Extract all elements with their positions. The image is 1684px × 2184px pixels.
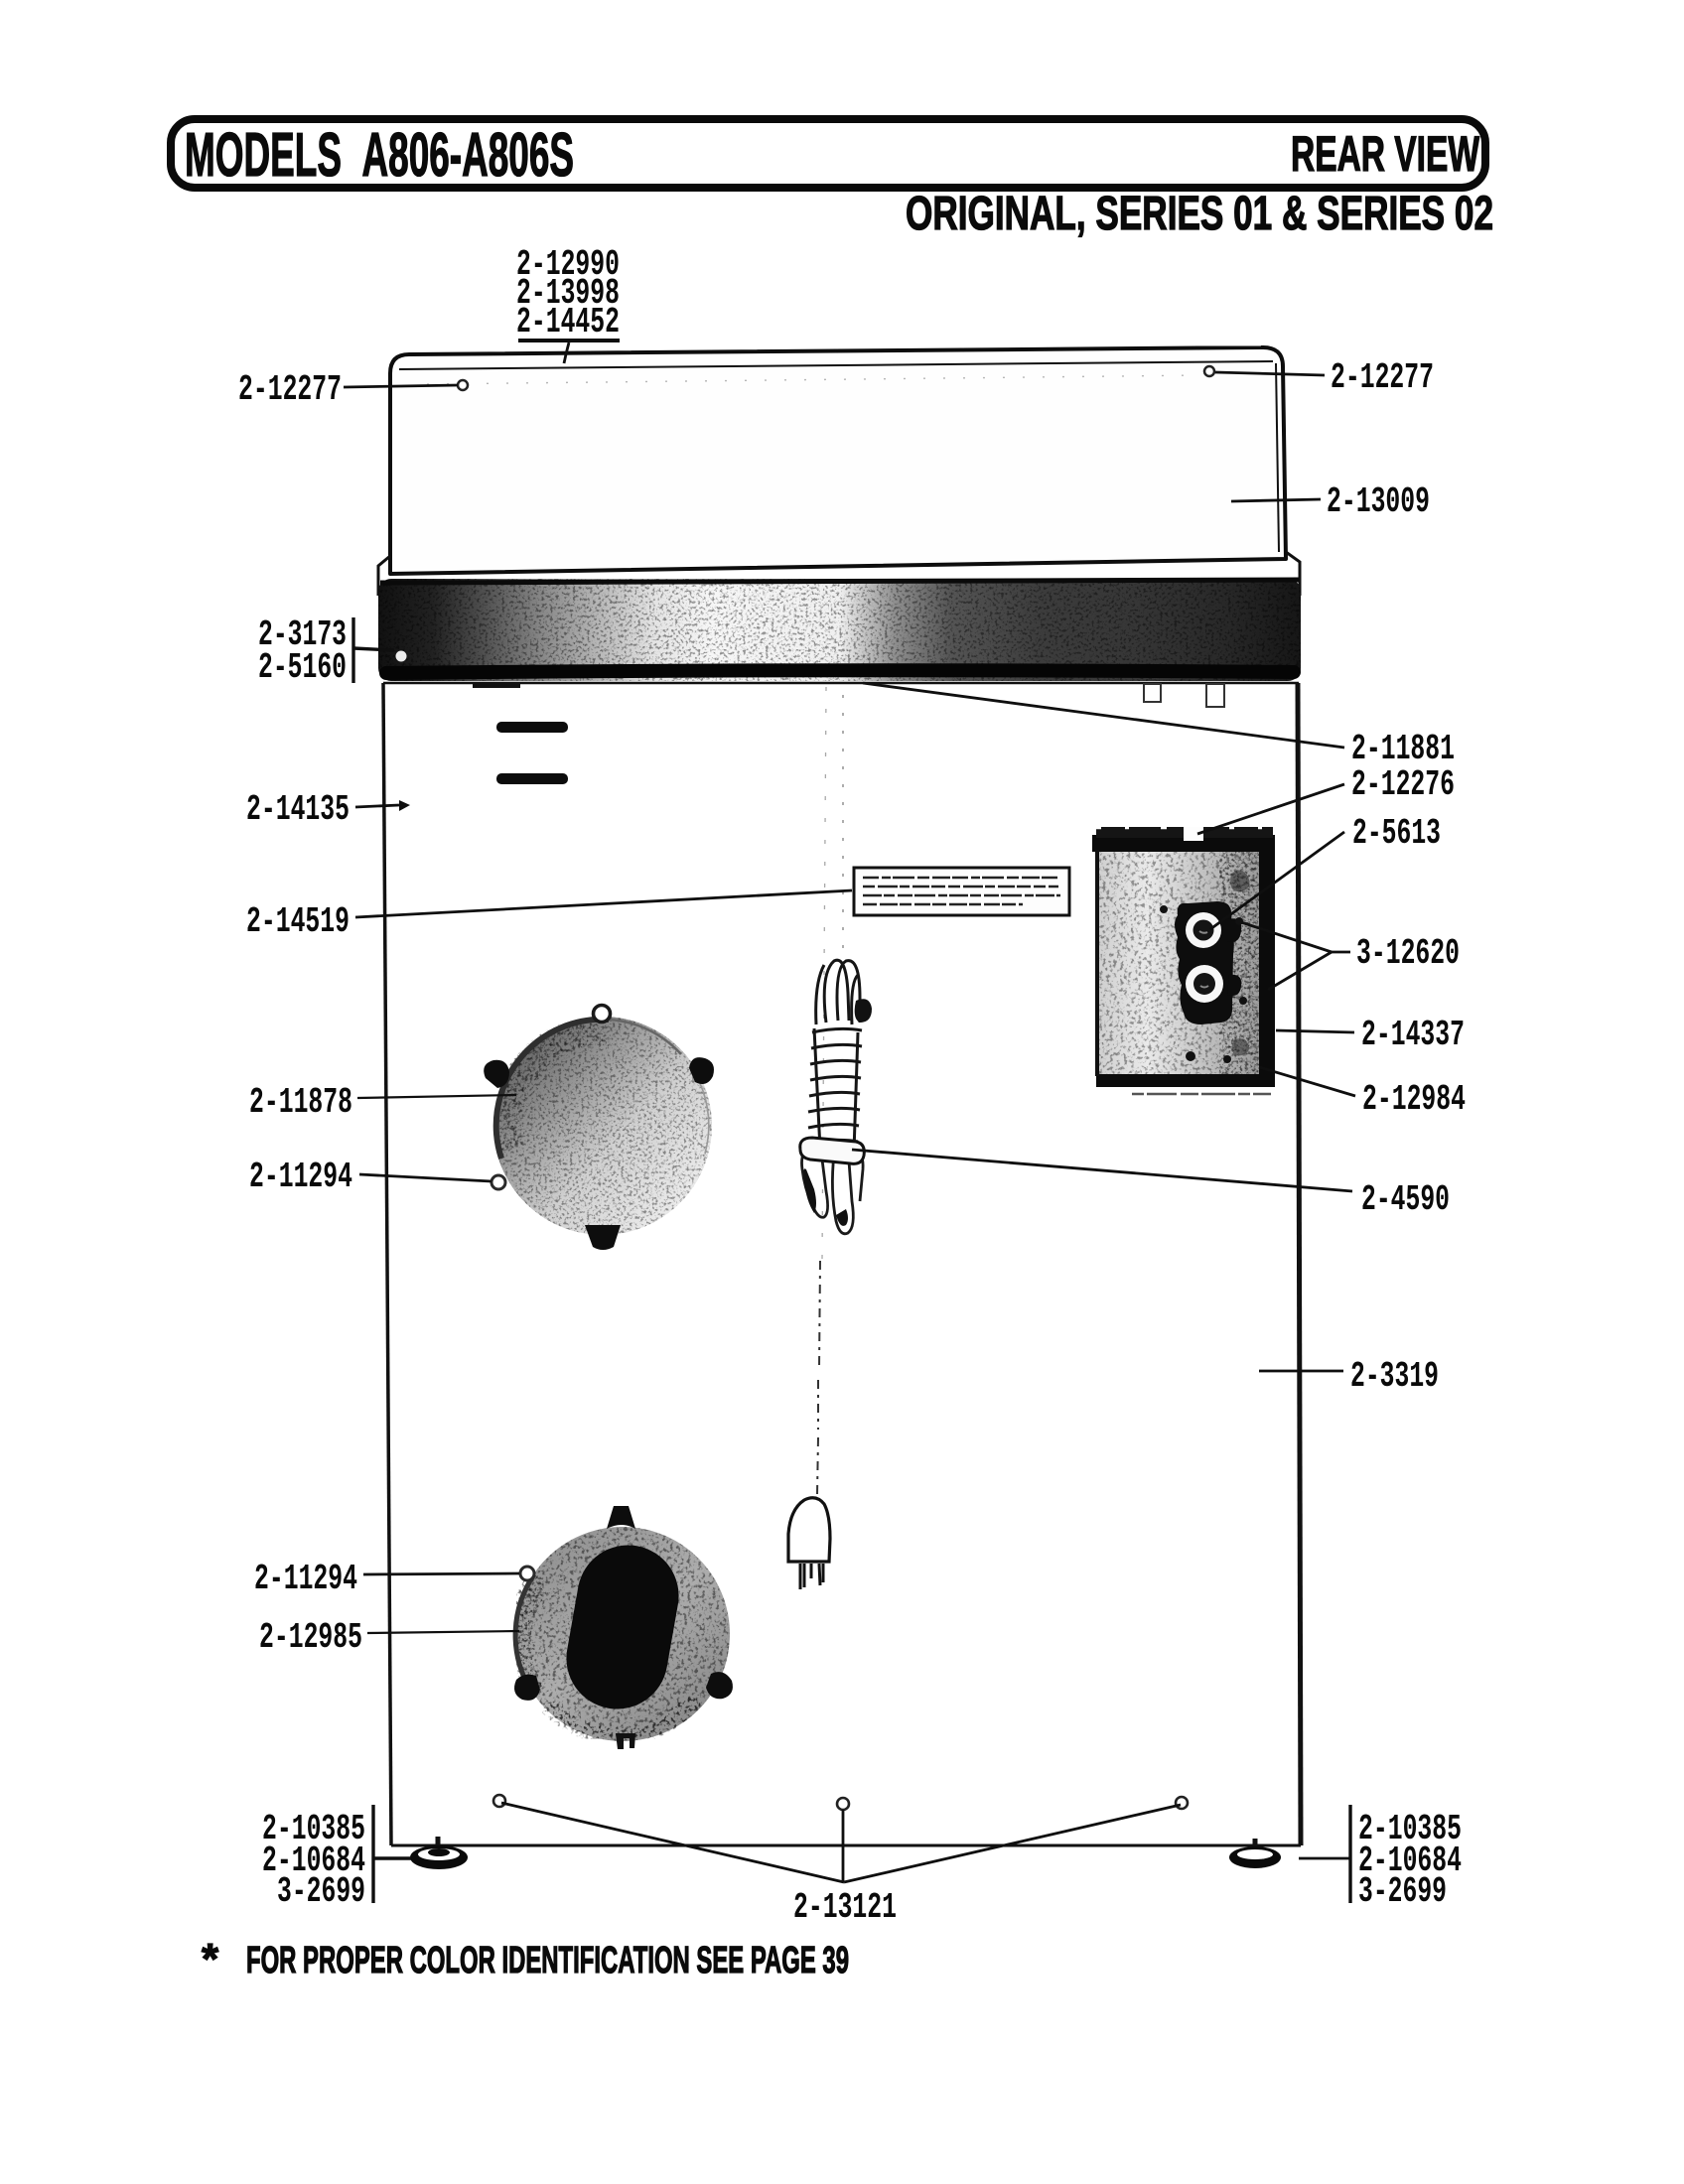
svg-text:2-14135: 2-14135 xyxy=(246,789,350,830)
svg-text:MODELS A806-A806S: MODELS A806-A806S xyxy=(185,121,574,190)
svg-text:*: * xyxy=(202,1935,219,1983)
svg-text:2-4590: 2-4590 xyxy=(1361,1179,1450,1220)
svg-text:2-11294: 2-11294 xyxy=(249,1157,352,1197)
svg-text:2-14519: 2-14519 xyxy=(246,901,350,942)
svg-text:REAR VIEW: REAR VIEW xyxy=(1291,126,1480,182)
svg-text:2-12277: 2-12277 xyxy=(238,369,342,410)
svg-text:2-14337: 2-14337 xyxy=(1361,1015,1465,1055)
svg-text:2-12984: 2-12984 xyxy=(1362,1079,1466,1120)
svg-text:FOR PROPER COLOR IDENTIFICATIO: FOR PROPER COLOR IDENTIFICATION SEE PAGE… xyxy=(246,1940,849,1981)
svg-text:2-11881: 2-11881 xyxy=(1351,729,1455,769)
svg-text:2-13121: 2-13121 xyxy=(793,1887,897,1928)
svg-text:2-5160: 2-5160 xyxy=(258,647,347,688)
svg-text:2-14452: 2-14452 xyxy=(516,302,620,342)
svg-text:3-2699: 3-2699 xyxy=(277,1871,365,1912)
svg-text:2-12277: 2-12277 xyxy=(1331,357,1434,398)
svg-text:2-11294: 2-11294 xyxy=(254,1559,357,1599)
svg-text:2-12276: 2-12276 xyxy=(1351,764,1455,805)
svg-text:3-12620: 3-12620 xyxy=(1356,933,1460,974)
svg-text:2-11878: 2-11878 xyxy=(249,1082,352,1123)
svg-text:2-5613: 2-5613 xyxy=(1352,813,1441,854)
svg-text:2-13009: 2-13009 xyxy=(1327,481,1430,522)
svg-text:2-3319: 2-3319 xyxy=(1350,1356,1439,1397)
svg-text:2-12985: 2-12985 xyxy=(259,1617,362,1658)
svg-text:ORIGINAL, SERIES 01 & SERIES 0: ORIGINAL, SERIES 01 & SERIES 02 xyxy=(906,188,1493,240)
svg-text:3-2699: 3-2699 xyxy=(1358,1871,1447,1912)
